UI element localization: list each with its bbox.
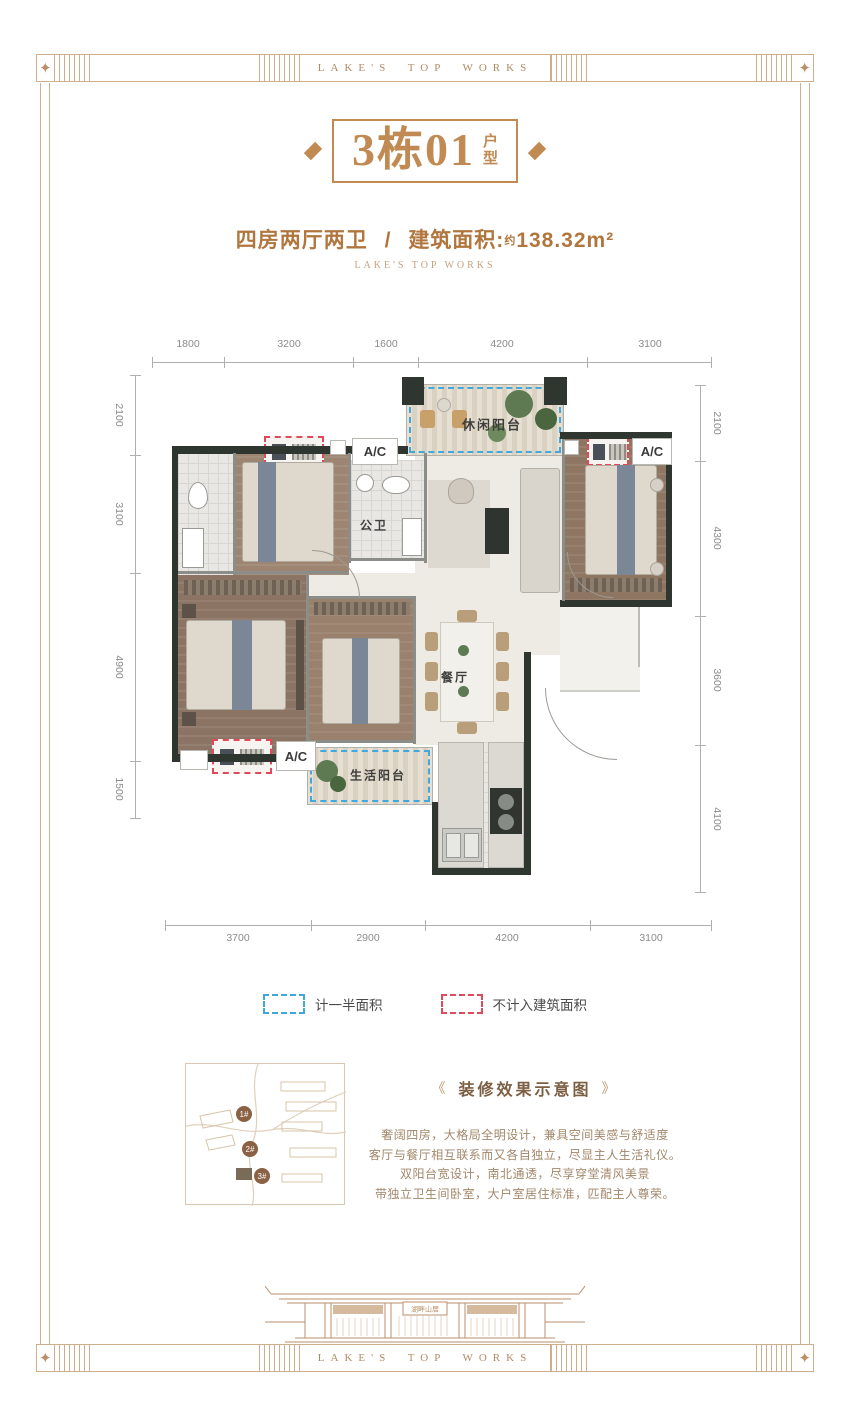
brand-band-text: LAKE'S TOP WORKS — [299, 1345, 551, 1371]
dim-tick — [695, 385, 706, 386]
public-bath-label: 公卫 — [360, 517, 388, 534]
table-plant — [458, 645, 469, 656]
partition — [413, 596, 416, 744]
site-map-drawing: 1# 2# 3# — [186, 1064, 346, 1206]
stove — [490, 788, 522, 834]
ac-label: A/C — [632, 438, 672, 465]
subtitle-separator: / — [375, 229, 402, 252]
band-stripes — [259, 1345, 299, 1371]
wardrobe — [184, 580, 302, 595]
balcony-table — [437, 398, 451, 412]
bed — [242, 462, 334, 562]
life-balcony-label: 生活阳台 — [350, 767, 406, 784]
dim-label: 2100 — [711, 399, 723, 447]
dim-label: 3100 — [626, 338, 674, 350]
unit-title: 3栋01 — [352, 127, 475, 173]
dim-label: 3100 — [627, 932, 675, 944]
ac-grille — [609, 444, 627, 460]
corner-star-icon: ✦ — [37, 61, 54, 76]
band-stripes — [551, 1345, 591, 1371]
dim-tick — [130, 573, 141, 574]
dim-tick — [711, 357, 712, 368]
partition — [348, 453, 351, 563]
dim-line-bottom — [165, 925, 712, 926]
legend-item-half-area: 计一半面积 — [263, 994, 383, 1014]
right-frame-rail — [800, 83, 810, 1344]
dining-chair — [425, 692, 438, 711]
dim-label: 2900 — [344, 932, 392, 944]
dim-tick — [130, 818, 141, 819]
dim-label: 4200 — [483, 932, 531, 944]
burner — [498, 794, 514, 810]
dim-tick — [590, 920, 591, 931]
nightstand — [182, 712, 196, 726]
dim-tick — [311, 920, 312, 931]
band-gap — [94, 55, 259, 81]
diamond-ornament-icon — [528, 142, 546, 160]
sofa — [520, 468, 560, 593]
sink-basin — [464, 833, 479, 858]
gatehouse-illustration: 湖畔山居 — [265, 1280, 585, 1344]
dim-tick — [224, 357, 225, 368]
partition — [309, 740, 416, 743]
dim-tick — [353, 357, 354, 368]
right-ornament: 》 — [602, 1078, 619, 1098]
sink — [442, 828, 482, 862]
window-box — [564, 440, 579, 455]
blue-dashed-swatch — [263, 994, 305, 1014]
dining-chair — [496, 662, 509, 681]
dining-chair — [496, 692, 509, 711]
dim-tick — [130, 761, 141, 762]
wall — [560, 600, 672, 607]
dim-label: 1500 — [113, 765, 125, 813]
partition — [233, 453, 236, 575]
bath-mirror — [356, 474, 374, 492]
dim-label: 3200 — [265, 338, 313, 350]
dim-tick — [165, 920, 166, 931]
description-line: 带独立卫生间卧室，大户室居住标准，匹配主人尊荣。 — [350, 1185, 700, 1205]
dim-tick — [130, 455, 141, 456]
wall — [544, 377, 567, 405]
bed-runner — [617, 465, 635, 575]
partition — [351, 558, 425, 561]
left-frame-rail — [40, 83, 50, 1344]
description-paragraph: 奢阔四房，大格局全明设计，兼具空间美感与舒适度 客厅与餐厅相互联系而又各自独立，… — [350, 1126, 700, 1204]
dining-chair — [425, 632, 438, 651]
highlighted-building — [236, 1168, 252, 1180]
nightstand — [650, 478, 664, 492]
left-ornament: 《 — [431, 1078, 448, 1098]
band-gap — [591, 1345, 756, 1371]
entry-door-swing — [545, 688, 617, 760]
partition — [306, 575, 309, 757]
description-title: 装修效果示意图 — [458, 1076, 591, 1100]
band-stripes — [54, 1345, 94, 1371]
dim-label: 3700 — [214, 932, 262, 944]
plant — [330, 776, 346, 792]
partition — [424, 453, 427, 563]
dim-tick — [711, 920, 712, 931]
bed-runner — [232, 620, 252, 710]
dim-label: 2100 — [113, 391, 125, 439]
dim-tick — [695, 745, 706, 746]
suffix-char: 型 — [483, 150, 498, 167]
corner-star-icon: ✦ — [796, 61, 813, 76]
description-title-row: 《 装修效果示意图 》 — [350, 1076, 700, 1100]
flyer-page: ✦ LAKE'S TOP WORKS ✦ 3栋01 户 型 四房两厅两卫 / 建… — [0, 0, 850, 1402]
unit-title-box: 3栋01 户 型 — [332, 119, 518, 183]
band-gap — [591, 55, 756, 81]
table-plant — [458, 686, 469, 697]
dim-label: 4200 — [478, 338, 526, 350]
band-stripes — [54, 55, 94, 81]
wall — [402, 377, 424, 405]
building-2-label: 2# — [246, 1145, 255, 1154]
suffix-char: 户 — [483, 133, 498, 150]
legend: 计一半面积 不计入建筑面积 — [0, 994, 850, 1014]
unit-subtitle: 四房两厅两卫 / 建筑面积:约138.32m² — [0, 224, 850, 254]
description-line: 奢阔四房，大格局全明设计，兼具空间美感与舒适度 — [350, 1126, 700, 1146]
nightstand — [182, 604, 196, 618]
dining-label: 餐厅 — [441, 669, 469, 686]
dim-label: 3600 — [711, 656, 723, 704]
band-stripes — [259, 55, 299, 81]
coffee-table — [485, 508, 509, 554]
dim-tick — [695, 461, 706, 462]
dim-label: 1600 — [362, 338, 410, 350]
rooms-summary: 四房两厅两卫 — [236, 229, 368, 252]
leisure-balcony-label: 休闲阳台 — [462, 415, 522, 434]
description-block: 《 装修效果示意图 》 奢阔四房，大格局全明设计，兼具空间美感与舒适度 客厅与餐… — [350, 1076, 700, 1204]
legend-label: 计一半面积 — [315, 994, 383, 1014]
dining-chair — [457, 722, 477, 734]
dim-tick — [695, 892, 706, 893]
diamond-ornament-icon — [304, 142, 322, 160]
toilet — [188, 482, 208, 509]
plant — [535, 408, 557, 430]
window-box — [180, 750, 208, 770]
corner-star-icon: ✦ — [796, 1351, 813, 1366]
wall — [432, 868, 531, 875]
approx-mark: 约 — [504, 235, 516, 247]
burner — [498, 814, 514, 830]
unit-title-row: 3栋01 户 型 — [0, 119, 850, 183]
legend-label: 不计入建筑面积 — [493, 994, 588, 1014]
dim-label: 3100 — [113, 490, 125, 538]
window-box — [330, 440, 346, 455]
band-stripes — [551, 55, 591, 81]
entry-sidewall — [638, 607, 640, 667]
balcony-chair — [420, 410, 435, 428]
building-3-label: 3# — [258, 1172, 267, 1181]
dim-tick — [418, 357, 419, 368]
building-1-label: 1# — [240, 1110, 249, 1119]
vanity — [182, 528, 204, 568]
corner-star-icon: ✦ — [37, 1351, 54, 1366]
band-stripes — [756, 1345, 796, 1371]
dim-tick — [152, 357, 153, 368]
brand-tagline: LAKE'S TOP WORKS — [0, 260, 850, 271]
dim-tick — [130, 375, 141, 376]
area-label: 建筑面积: — [408, 229, 504, 252]
dim-line-top — [152, 362, 712, 363]
wall — [524, 652, 531, 875]
dim-tick — [695, 616, 706, 617]
gatehouse-plaque: 湖畔山居 — [411, 1305, 439, 1314]
bottom-border-band: ✦ LAKE'S TOP WORKS ✦ — [36, 1344, 814, 1372]
area-unit: m² — [587, 229, 615, 252]
dim-line-left — [135, 375, 136, 818]
ac-label: A/C — [276, 741, 316, 771]
bed-runner — [352, 638, 368, 724]
armchair — [448, 478, 474, 504]
wall — [172, 446, 178, 762]
dining-chair — [425, 662, 438, 681]
band-stripes — [756, 55, 796, 81]
dim-label: 4300 — [711, 514, 723, 562]
dim-tick — [425, 920, 426, 931]
dining-chair — [457, 610, 477, 622]
brand-band-text: LAKE'S TOP WORKS — [299, 55, 551, 81]
site-map: 1# 2# 3# — [185, 1063, 345, 1205]
ac-label: A/C — [352, 438, 398, 465]
dim-tick — [587, 357, 588, 368]
band-gap — [94, 1345, 259, 1371]
sink-basin — [446, 833, 461, 858]
legend-item-excluded: 不计入建筑面积 — [441, 994, 588, 1014]
entry-floor — [560, 607, 640, 692]
vanity — [402, 518, 422, 556]
unit-title-suffix: 户 型 — [483, 133, 498, 168]
dim-label: 4100 — [711, 795, 723, 843]
ac-unit — [593, 444, 605, 460]
bed-runner — [258, 462, 276, 562]
description-line: 双阳台宽设计，南北通透，尽享穿堂清风美景 — [350, 1165, 700, 1185]
dining-chair — [496, 632, 509, 651]
top-border-band: ✦ LAKE'S TOP WORKS ✦ — [36, 54, 814, 82]
dim-label: 1800 — [164, 338, 212, 350]
partition — [562, 439, 565, 601]
tv-console — [296, 620, 304, 710]
ac-platform-right — [587, 436, 629, 466]
dim-label: 4900 — [113, 643, 125, 691]
red-dashed-swatch — [441, 994, 483, 1014]
description-line: 客厅与餐厅相互联系而又各自独立，尽显主人生活礼仪。 — [350, 1146, 700, 1166]
nightstand — [650, 562, 664, 576]
toilet — [382, 476, 410, 494]
wardrobe — [314, 602, 410, 615]
area-value: 138.32 — [516, 229, 586, 252]
